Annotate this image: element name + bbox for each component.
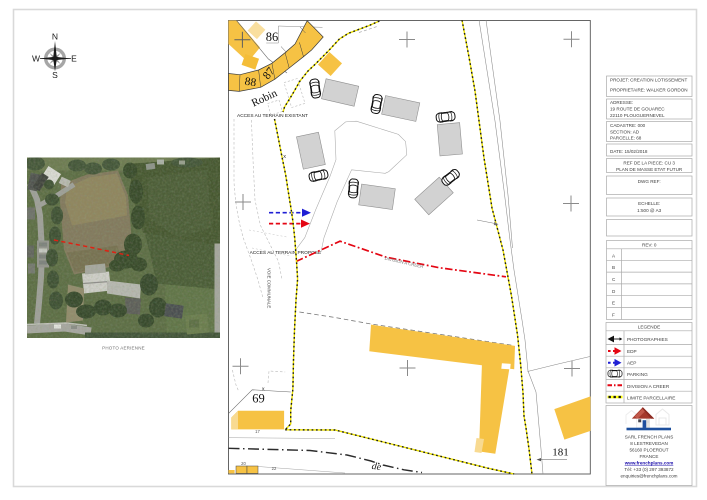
- svg-text:22: 22: [272, 466, 277, 471]
- svg-text:LEGENDE: LEGENDE: [638, 325, 660, 330]
- svg-text:ADRESSE:: ADRESSE:: [610, 100, 633, 105]
- svg-text:ACCES AU TERRAIN EXISTANT: ACCES AU TERRAIN EXISTANT: [237, 113, 308, 119]
- svg-text:19 ROUTE DE GOUAREC: 19 ROUTE DE GOUAREC: [610, 106, 665, 111]
- svg-text:PARKING: PARKING: [627, 372, 648, 377]
- svg-text:Tél: +33 (0) 297 393872: Tél: +33 (0) 297 393872: [624, 467, 674, 472]
- svg-text:EDP: EDP: [627, 349, 637, 354]
- svg-text:PROPRIETAIRE: WALKER GORDON: PROPRIETAIRE: WALKER GORDON: [610, 88, 688, 93]
- svg-text:22110 PLOUGUERNEVEL: 22110 PLOUGUERNEVEL: [610, 113, 665, 118]
- svg-text:de: de: [371, 461, 382, 473]
- svg-text:DIVISION A CREER: DIVISION A CREER: [627, 384, 670, 389]
- svg-text:E: E: [71, 54, 77, 64]
- svg-text:PROJET: CREATION LOTISSEMENT: PROJET: CREATION LOTISSEMENT: [610, 78, 687, 83]
- svg-text:SARL FRENCH PLANS: SARL FRENCH PLANS: [625, 435, 674, 440]
- svg-text:DWG REF:: DWG REF:: [638, 179, 661, 184]
- svg-text:DATE: 15/02/2018: DATE: 15/02/2018: [610, 149, 648, 154]
- svg-text:REV: 0: REV: 0: [642, 243, 657, 248]
- svg-text:F: F: [612, 312, 615, 317]
- svg-text:www.frenchplans.com: www.frenchplans.com: [624, 461, 674, 466]
- svg-text:SECTION: AD: SECTION: AD: [610, 129, 640, 134]
- svg-text:x: x: [262, 387, 265, 393]
- svg-text:88: 88: [244, 76, 257, 90]
- svg-text:AEP: AEP: [627, 361, 636, 366]
- svg-text:56160 PLOERDUT: 56160 PLOERDUT: [629, 448, 668, 453]
- svg-text:FRANCE: FRANCE: [640, 454, 659, 459]
- svg-text:69: 69: [252, 392, 265, 406]
- svg-text:PLAN DE MASSE ETAT FUTUR: PLAN DE MASSE ETAT FUTUR: [616, 167, 683, 172]
- svg-text:VOIE COMMUNALE: VOIE COMMUNALE: [267, 268, 272, 308]
- svg-text:LIMITE PARCELLAIRE: LIMITE PARCELLAIRE: [627, 396, 675, 401]
- svg-text:S: S: [52, 70, 58, 80]
- svg-text:enquiries@frenchplans.com: enquiries@frenchplans.com: [620, 474, 677, 479]
- svg-text:181: 181: [552, 447, 569, 459]
- svg-text:N: N: [52, 32, 58, 42]
- svg-text:8 LESTREVEDAN: 8 LESTREVEDAN: [630, 441, 668, 446]
- svg-text:REF DE LA PIECE: CU 3: REF DE LA PIECE: CU 3: [623, 161, 675, 166]
- svg-text:PHOTO AERIENNE: PHOTO AERIENNE: [102, 345, 145, 350]
- svg-text:B: B: [612, 265, 615, 270]
- svg-text:86: 86: [266, 30, 279, 44]
- svg-text:E: E: [612, 301, 615, 306]
- svg-text:ECHELLE:: ECHELLE:: [638, 201, 660, 206]
- svg-text:x: x: [283, 154, 286, 160]
- svg-text:17: 17: [255, 429, 260, 434]
- svg-text:PARCELLE: 68: PARCELLE: 68: [610, 136, 642, 141]
- svg-text:1:500 @ A3: 1:500 @ A3: [637, 208, 662, 213]
- svg-text:W: W: [32, 54, 40, 64]
- svg-text:CADASTRE: 000: CADASTRE: 000: [610, 123, 646, 128]
- svg-text:20: 20: [241, 461, 246, 466]
- svg-text:PHOTOGRAPHIES: PHOTOGRAPHIES: [627, 337, 668, 342]
